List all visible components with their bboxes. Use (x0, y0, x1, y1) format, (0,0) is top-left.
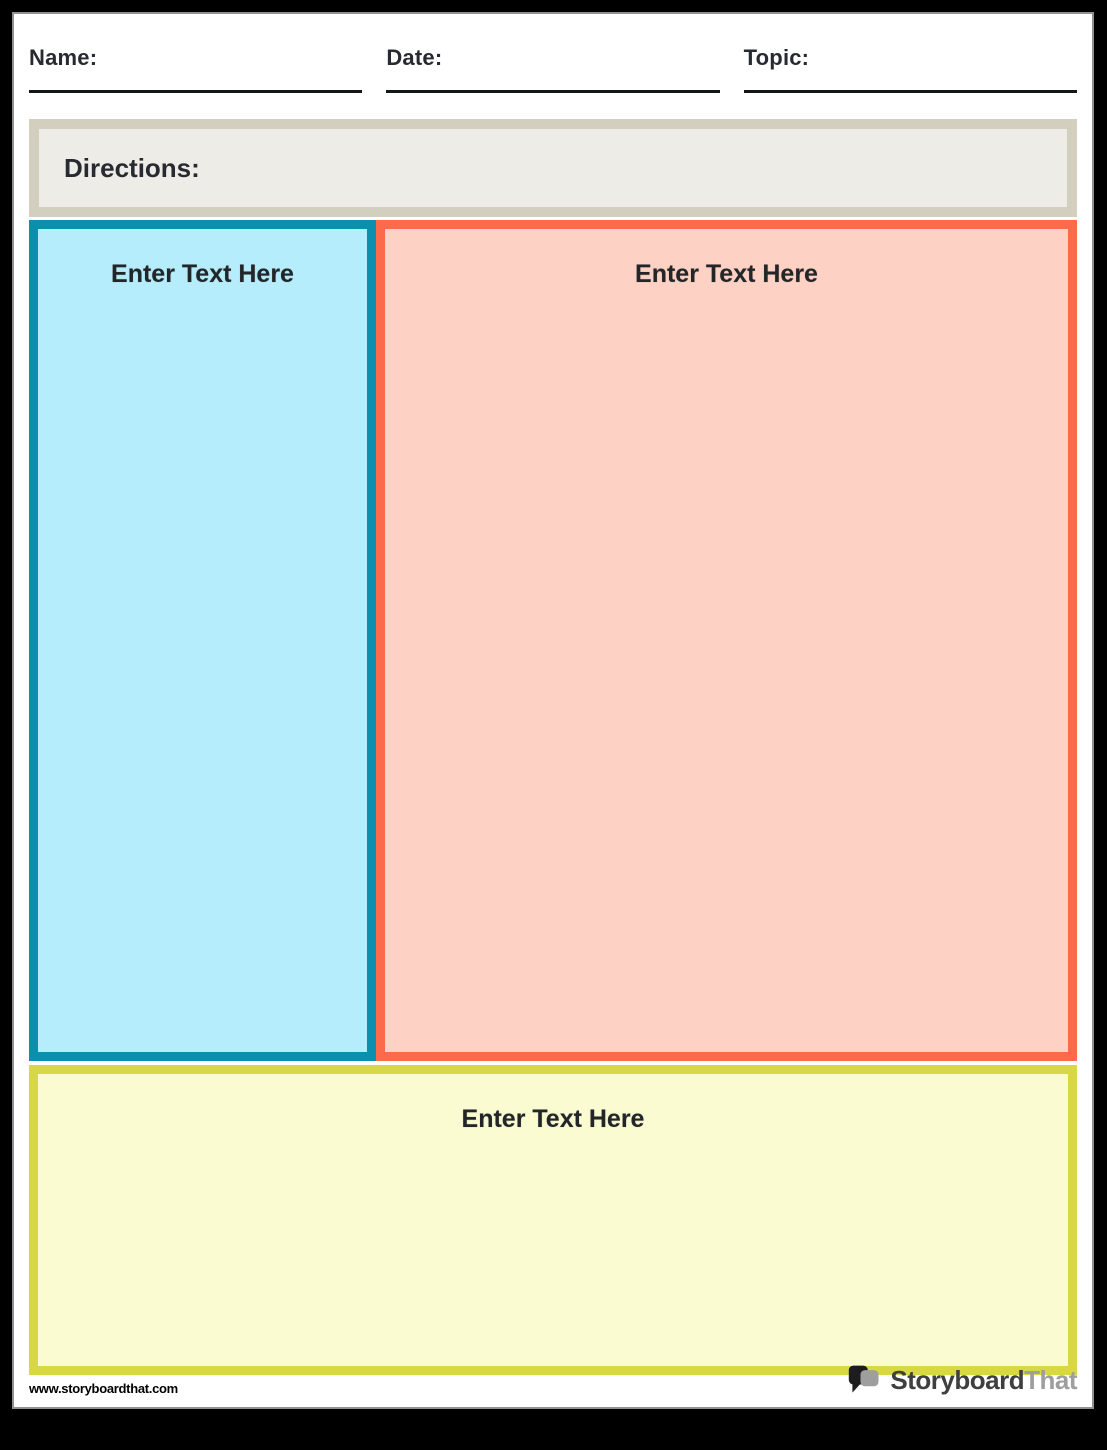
directions-label: Directions: (64, 153, 200, 184)
text-placeholder[interactable]: Enter Text Here (385, 260, 1068, 289)
storyboardthat-logo: StoryboardThat (847, 1362, 1077, 1398)
text-box-left[interactable]: Enter Text Here (29, 220, 376, 1061)
header-row: Name: Date: Topic: (29, 45, 1077, 93)
date-field: Date: (386, 45, 719, 93)
date-writein-line[interactable] (386, 90, 719, 93)
date-label: Date: (386, 45, 719, 71)
main-grid: Enter Text Here Enter Text Here (29, 220, 1077, 1061)
name-writein-line[interactable] (29, 90, 362, 93)
website-url: www.storyboardthat.com (29, 1381, 178, 1396)
text-placeholder[interactable]: Enter Text Here (38, 260, 367, 289)
logo-text-storyboard: Storyboard (890, 1365, 1024, 1395)
topic-writein-line[interactable] (744, 90, 1077, 93)
worksheet-page: Name: Date: Topic: Directions: Enter Tex… (12, 12, 1094, 1409)
text-box-bottom[interactable]: Enter Text Here (29, 1065, 1077, 1375)
footer: www.storyboardthat.com StoryboardThat (29, 1365, 1077, 1407)
name-label: Name: (29, 45, 362, 71)
speech-bubbles-icon (847, 1362, 883, 1398)
logo-text-that: That (1024, 1365, 1077, 1395)
logo-text: StoryboardThat (890, 1365, 1077, 1396)
text-placeholder[interactable]: Enter Text Here (38, 1105, 1068, 1134)
topic-label: Topic: (744, 45, 1077, 71)
topic-field: Topic: (744, 45, 1077, 93)
directions-box: Directions: (29, 119, 1077, 217)
text-box-right[interactable]: Enter Text Here (376, 220, 1077, 1061)
name-field: Name: (29, 45, 362, 93)
